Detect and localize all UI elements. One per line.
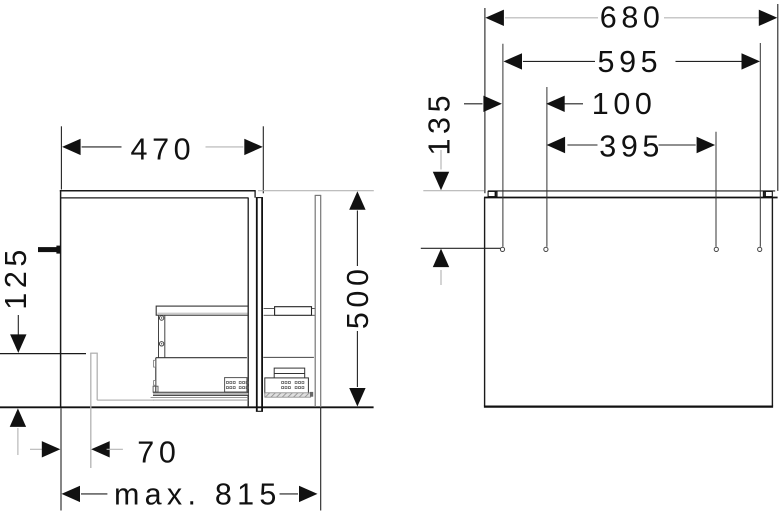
svg-text:595: 595 [598, 45, 663, 79]
svg-text:125: 125 [0, 245, 33, 310]
svg-text:100: 100 [592, 87, 657, 121]
svg-text:135: 135 [423, 91, 457, 156]
svg-text:470: 470 [131, 133, 196, 167]
svg-text:max. 815: max. 815 [114, 477, 281, 511]
svg-text:395: 395 [599, 129, 664, 163]
svg-text:680: 680 [600, 1, 665, 35]
svg-text:500: 500 [341, 264, 375, 329]
svg-text:70: 70 [137, 435, 180, 469]
